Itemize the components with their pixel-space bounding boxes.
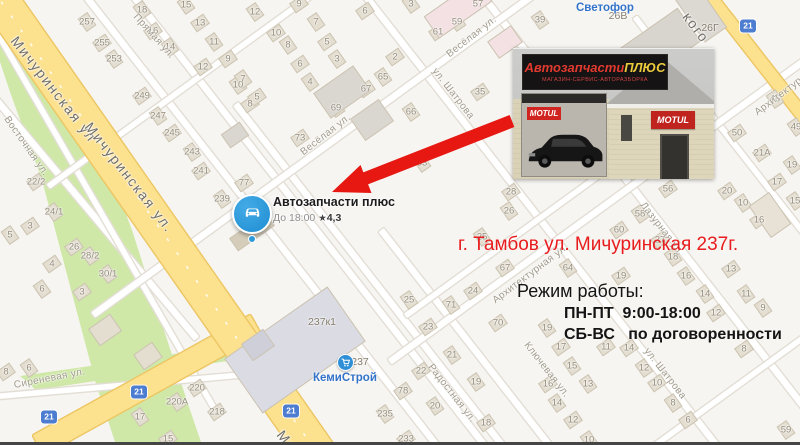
house-number: 10 — [652, 378, 663, 388]
house-number: 3 — [79, 287, 84, 297]
store-name[interactable]: Автозапчасти плюс — [273, 196, 395, 210]
house-number: 25 — [404, 295, 415, 305]
house-number: 241 — [193, 166, 209, 176]
house-number: 15 — [181, 0, 192, 10]
house-number: 253 — [106, 54, 122, 64]
house-number: 12 — [250, 7, 261, 17]
house-number: 22/2 — [27, 177, 46, 187]
house-number: 14 — [624, 343, 635, 353]
motul-logo: MOTUL — [527, 107, 561, 120]
house-number: 3 — [408, 0, 413, 9]
house-number: 239 — [214, 194, 230, 204]
schedule-weekend: СБ-ВС по договоренности — [564, 326, 782, 344]
photo-ad-banner: MOTUL — [521, 93, 607, 177]
house-number: 71 — [446, 300, 457, 310]
banner-header-strip — [522, 94, 606, 103]
house-number: 6 — [26, 363, 31, 373]
house-number: 21А — [754, 148, 771, 158]
shop-poi-icon[interactable] — [337, 354, 354, 371]
house-number: 26 — [504, 206, 515, 216]
house-number: 20 — [430, 401, 441, 411]
house-number: 8 — [3, 367, 8, 377]
house-number: 59 — [781, 425, 792, 435]
house-number: 28 — [506, 187, 517, 197]
house-number: 9 — [296, 0, 301, 9]
house-number: 5 — [324, 37, 329, 47]
motul-wall-sign: MOTUL — [651, 111, 695, 129]
house-number: 78 — [398, 386, 409, 396]
photo-door — [660, 134, 689, 179]
house-number: 6 — [362, 6, 367, 16]
house-number: 23 — [423, 322, 434, 332]
house-number: 3 — [27, 221, 32, 231]
house-number: 18 — [481, 418, 492, 428]
building-address: 237к1 — [308, 317, 336, 328]
street-label: Архитектурная ул. — [753, 54, 800, 118]
house-number: 15 — [790, 196, 800, 206]
street-label: Прямая ул. — [131, 12, 177, 61]
house-number: 6 — [39, 284, 44, 294]
store-rating: 4,3 — [327, 212, 342, 224]
house-number: 12 — [198, 62, 209, 72]
house-number: 255 — [94, 38, 110, 48]
house-number: 20 — [722, 186, 733, 196]
address-annotation: г. Тамбов ул. Мичуринская 237г. — [458, 234, 738, 256]
house-number: 57 — [473, 0, 484, 9]
house-number: 6 — [685, 415, 690, 425]
house-number: 67 — [500, 263, 511, 273]
street-label: Сиреневая ул. — [13, 366, 86, 391]
schedule-heading: Режим работы: — [517, 281, 782, 302]
street-label: ул. Шатрова — [430, 66, 477, 121]
house-number: 59 — [452, 17, 463, 27]
house-number: 4 — [49, 259, 54, 269]
photo-window — [621, 115, 632, 141]
shop-sign-text: АвтозапчастиПЛЮС — [525, 61, 666, 74]
street-label: Весёлая ул. — [299, 112, 353, 158]
house-number: 7 — [240, 74, 245, 84]
house-number: 33 — [417, 158, 428, 168]
house-number: 67 — [361, 84, 372, 94]
house-number: 11 — [209, 37, 219, 47]
house-number: 3 — [334, 54, 339, 64]
house-number: 13 — [726, 264, 737, 274]
house-number: 19 — [787, 160, 798, 170]
house-number: 16 — [754, 215, 765, 225]
house-number: 10 — [738, 198, 749, 208]
house-number: 245 — [164, 128, 180, 138]
house-number: 16 — [681, 271, 692, 281]
house-number: 28/2 — [81, 251, 100, 261]
house-number: 5 — [254, 92, 259, 102]
route-shield: 21 — [41, 411, 57, 424]
house-number: 26 — [69, 242, 80, 252]
house-number: 220 — [189, 383, 205, 393]
house-number: 24/1 — [45, 207, 64, 217]
house-number: 30/1 — [99, 269, 118, 279]
store-map-label[interactable]: Автозапчасти плюс До 18:00 ★4,3 — [273, 196, 395, 224]
house-number: 70 — [493, 318, 504, 328]
house-number: 218 — [209, 407, 225, 417]
house-number: 8 — [247, 99, 252, 109]
house-number: 235 — [377, 409, 393, 419]
store-hours: До 18:00 — [273, 212, 315, 224]
house-number: 6 — [297, 59, 302, 69]
house-number: 8 — [285, 40, 290, 50]
route-shield: 21 — [740, 20, 756, 33]
house-number: 12 — [568, 415, 579, 425]
house-number: 39 — [535, 15, 546, 25]
route-shield: 21 — [283, 405, 299, 418]
photo-shop-sign: АвтозапчастиПЛЮС МАГАЗИН-СЕРВИС-АВТОРАЗБ… — [522, 54, 668, 90]
house-number: 4 — [307, 77, 312, 87]
house-number: 7 — [313, 17, 318, 27]
poi-label[interactable]: КемиСтрой — [313, 372, 377, 384]
shop-sign-subtext: МАГАЗИН-СЕРВИС-АВТОРАЗБОРКА — [542, 77, 648, 83]
house-number: 56 — [663, 184, 674, 194]
store-map-pin[interactable] — [232, 194, 272, 234]
house-number: 19 — [616, 271, 627, 281]
house-number: 17 — [135, 412, 146, 422]
house-number: 5 — [7, 230, 12, 240]
store-status-row: До 18:00 ★4,3 — [273, 212, 395, 224]
house-number: 17 — [772, 177, 783, 187]
house-number: 69 — [331, 103, 342, 113]
house-number: 247 — [150, 111, 166, 121]
house-number: 49 — [791, 122, 800, 132]
poi-label[interactable]: Светофор — [576, 2, 634, 14]
storefront-photo: АвтозапчастиПЛЮС МАГАЗИН-СЕРВИС-АВТОРАЗБ… — [513, 48, 714, 179]
house-number: 249 — [134, 91, 150, 101]
house-number: 35 — [475, 87, 486, 97]
route-shield: 21 — [131, 386, 147, 399]
map-screenshot: 2572552532492472452432412397718161412108… — [0, 0, 800, 445]
street-label: ул. Шатрова — [642, 346, 689, 401]
house-number: 9 — [225, 54, 230, 64]
house-number: 14 — [552, 398, 563, 408]
house-number: 24 — [468, 286, 479, 296]
schedule-annotation: Режим работы: ПН-ПТ 9:00-18:00 СБ-ВС по … — [517, 281, 782, 344]
house-number: 15 — [567, 361, 578, 371]
house-number: 257 — [79, 17, 95, 27]
house-number: 21 — [447, 350, 458, 360]
house-number: 73 — [295, 133, 306, 143]
photo-roof-eave — [601, 104, 714, 108]
house-number: 10 — [271, 28, 282, 38]
house-number: 19 — [471, 377, 482, 387]
car-photo-silhouette — [524, 126, 604, 174]
house-number: 50 — [732, 128, 743, 138]
car-icon — [243, 202, 262, 226]
house-number: 65 — [378, 72, 389, 82]
house-number: 77 — [239, 178, 250, 188]
house-number: 243 — [184, 147, 200, 157]
street-label: Восточная ул. — [1, 114, 50, 178]
house-number: 12 — [639, 363, 650, 373]
house-number: 66 — [406, 107, 417, 117]
house-number: 8 — [670, 398, 675, 408]
house-number: 2 — [392, 52, 397, 62]
house-number: 22 — [416, 366, 427, 376]
schedule-weekdays: ПН-ПТ 9:00-18:00 — [564, 305, 782, 323]
pin-anchor-dot — [248, 235, 256, 243]
house-number: 13 — [195, 18, 206, 28]
street-label: Радостная ул. — [426, 362, 478, 425]
house-number: 8 — [741, 344, 746, 354]
rating-star-icon: ★ — [318, 213, 327, 224]
house-number: 13 — [583, 379, 594, 389]
house-number: 61 — [433, 27, 444, 37]
house-number: 64 — [563, 263, 574, 273]
house-number: 220А — [166, 397, 188, 407]
